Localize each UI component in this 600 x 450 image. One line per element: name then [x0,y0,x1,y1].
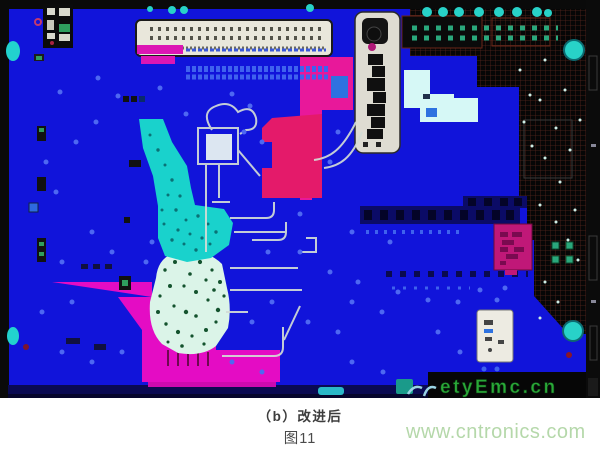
tall-silkscreen-component [355,12,400,153]
article-page: etyEmc.cn （b）改进后 图11 www.cntronics.com [0,0,600,450]
mounting-hole-top-right [564,40,584,60]
board-watermark-text: etyEmc.cn [440,377,558,398]
white-component-bottom-right [477,310,513,372]
mounting-hole-bottom-right [563,321,583,341]
board-watermark-strip: etyEmc.cn [408,372,586,398]
mint-pour [150,251,230,354]
crimson-component-right [494,224,532,275]
pcb-layout-screenshot: etyEmc.cn [0,0,600,400]
site-watermark: www.cntronics.com [406,421,600,444]
